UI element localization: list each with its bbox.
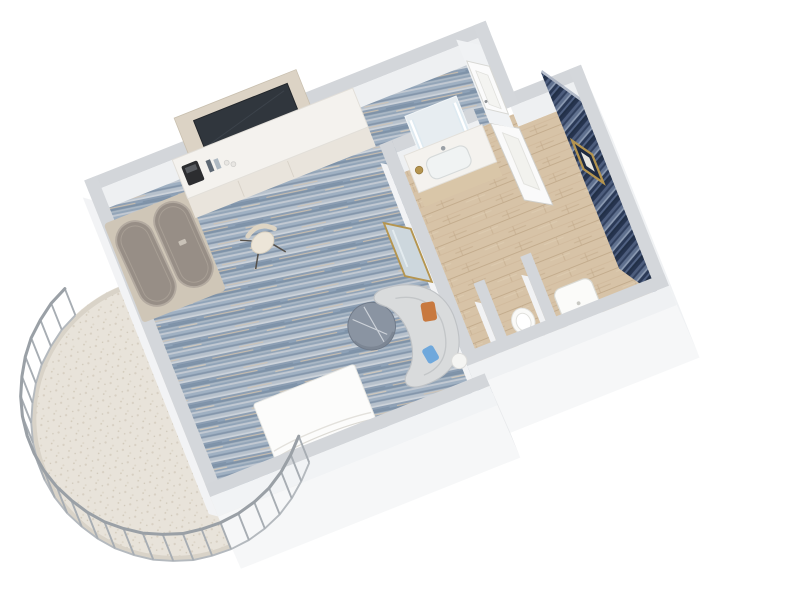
floor-plan-render (0, 0, 800, 600)
floor-plan-stage (0, 0, 800, 600)
oblique-projection-group (0, 0, 709, 600)
